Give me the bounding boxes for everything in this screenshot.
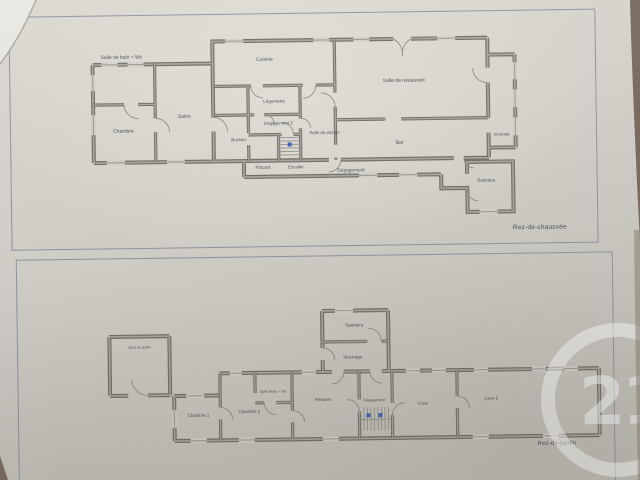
background-bottom-left-corner	[0, 456, 8, 480]
century21-watermark: 21	[547, 329, 640, 471]
room-label-salle-de-restaurant: Salle de restaurant	[383, 78, 426, 85]
stair-direction-mark	[288, 142, 292, 146]
plan2-door-arcs	[131, 327, 469, 425]
room-label-bureau: Bureau	[231, 137, 246, 142]
century21-21-text: 21	[579, 362, 640, 440]
room-label-chambre2: Chambre 2	[238, 409, 260, 414]
plan1-ground-floor: Salle de bain + Wc Chambre Salon Cuisine…	[92, 37, 567, 238]
room-label-chambre1: Chambre 1	[188, 413, 210, 418]
plan1-frame	[9, 9, 598, 250]
room-label-degagement-rdj: Dégagement	[363, 398, 386, 402]
stair-direction-mark	[378, 413, 382, 417]
paper-corner-top-left	[0, 0, 36, 64]
room-label-cave: Cave	[418, 400, 429, 405]
room-label-salle-de-plonge: Salle de plonge	[309, 130, 340, 135]
room-label-stockage: Stockage	[343, 354, 363, 359]
room-label-degagement: Dégagement	[337, 167, 365, 173]
room-label-abris-de-jardin: abris de jardin	[128, 345, 151, 349]
plan2-garden-level: abris de jardin Sanitaire Stockage Chamb…	[109, 307, 600, 453]
plan1-title: Rez-de-chaussée	[513, 224, 567, 232]
room-label-bar: Bar	[396, 140, 404, 146]
room-label-chambre: Chambre	[113, 129, 134, 135]
document-page: Salle de bain + Wc Chambre Salon Cuisine…	[9, 8, 640, 480]
room-label-salle-de-bain: Salle de bain + Wc	[100, 54, 142, 61]
room-label-cave2: Cave 2	[484, 396, 499, 401]
room-label-veranda: Véranda	[494, 131, 511, 136]
plan2-frame	[16, 252, 616, 480]
room-label-reserve: Réserve	[315, 397, 332, 402]
room-label-salle-eau: Salle d'eau + Wc	[260, 389, 287, 393]
background-right-edge-bottom	[634, 230, 640, 480]
background-right-edge-top	[630, 0, 640, 242]
stair-direction-mark	[366, 413, 370, 417]
room-label-placard: Placard	[255, 165, 271, 170]
room-label-sanitaire-rdj: Sanitaire	[345, 322, 364, 327]
plan2-windows	[173, 307, 579, 441]
room-label-salon: Salon	[178, 114, 191, 120]
staircase-plan1	[281, 137, 300, 158]
floor-plan-photo: Salle de bain + Wc Chambre Salon Cuisine…	[0, 0, 640, 480]
staircase-plan2	[360, 407, 392, 430]
room-label-sanitaire-rdc: Sanitaire	[477, 178, 496, 183]
room-label-cuisine: Cuisine	[256, 57, 273, 63]
floor-plan-drawing: Salle de bain + Wc Chambre Salon Cuisine…	[0, 0, 640, 480]
room-label-legumerie: Légumerie	[263, 98, 285, 103]
room-label-escalier: Escalier	[288, 164, 304, 169]
room-label-degagement2: Dégagement 2	[264, 120, 293, 125]
